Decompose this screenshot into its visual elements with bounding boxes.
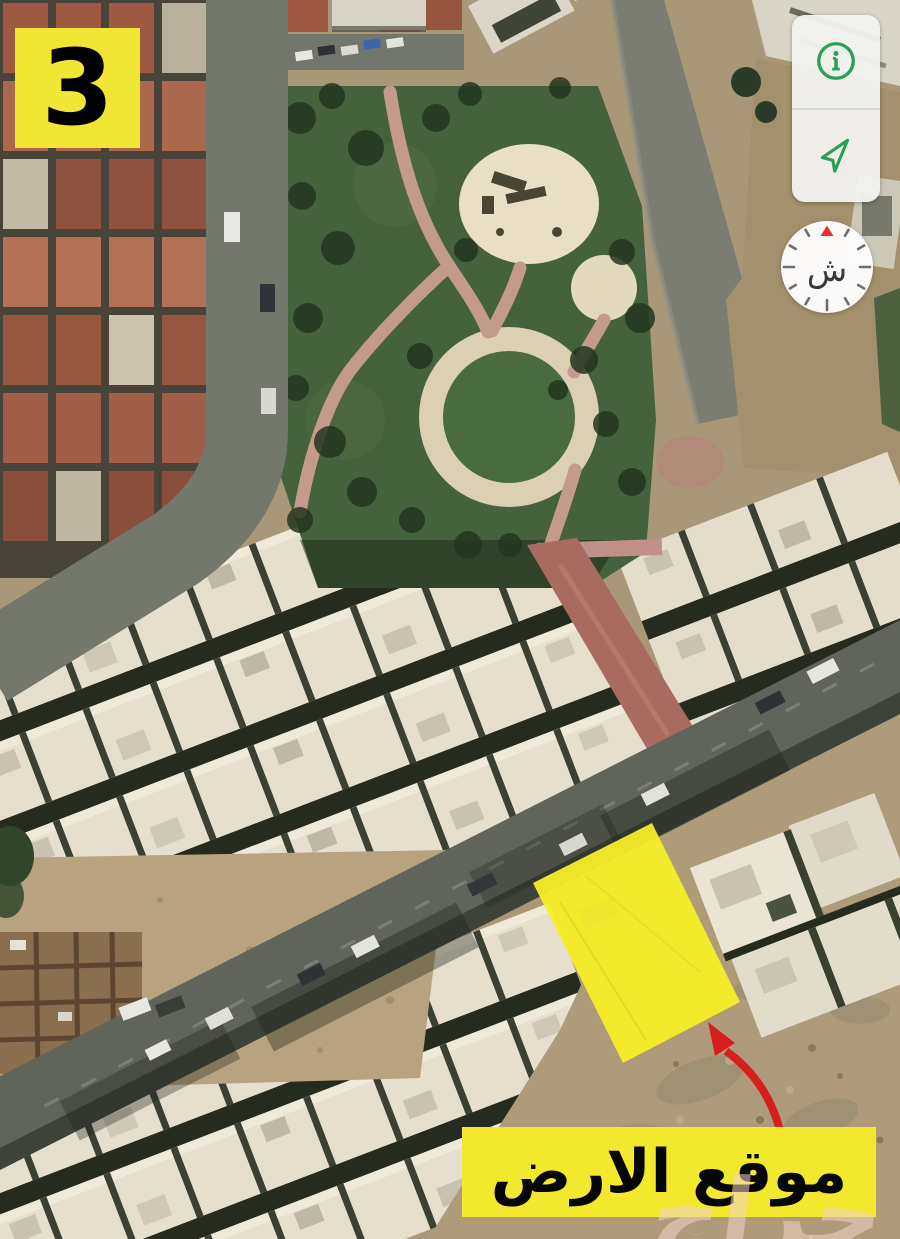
locate-button[interactable] <box>792 110 880 203</box>
map-controls-panel <box>792 15 880 202</box>
satellite-imagery <box>0 0 900 1239</box>
info-icon <box>813 38 859 84</box>
navigation-arrow-icon <box>813 133 859 179</box>
park <box>278 77 662 588</box>
compass-north-label: ش <box>781 221 873 313</box>
info-button[interactable] <box>792 15 880 108</box>
compass-button[interactable]: ش <box>781 221 873 313</box>
map-viewport[interactable]: 3 <box>0 0 900 1239</box>
photo-index-badge: 3 <box>15 28 140 148</box>
old-district-top-strip <box>286 0 464 70</box>
haraj-watermark: حراج <box>645 1158 890 1239</box>
